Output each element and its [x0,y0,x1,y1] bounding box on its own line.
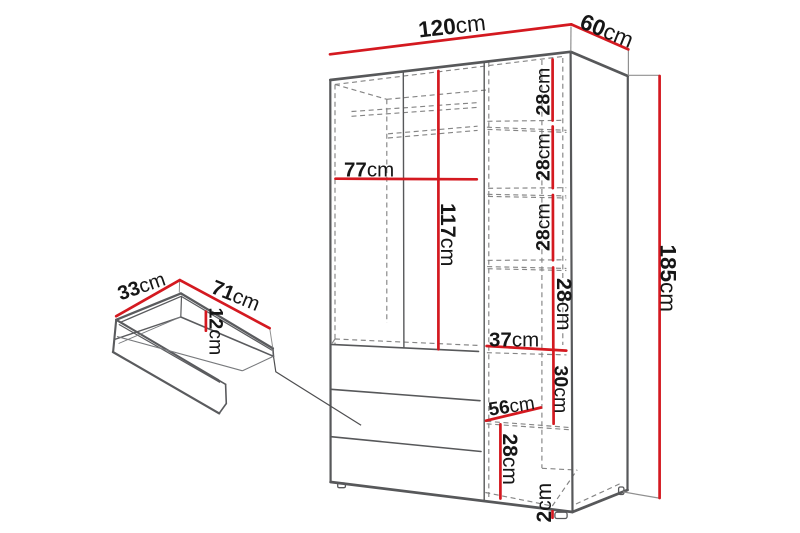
svg-text:28cm: 28cm [533,68,555,116]
svg-text:28cm: 28cm [533,133,555,181]
svg-text:30cm: 30cm [550,366,572,414]
svg-text:28cm: 28cm [533,203,555,251]
svg-text:37cm: 37cm [489,329,539,352]
svg-text:28cm: 28cm [552,278,576,331]
svg-text:77cm: 77cm [344,159,394,182]
svg-text:185cm: 185cm [656,245,681,313]
svg-text:28cm: 28cm [498,434,521,485]
svg-text:117cm: 117cm [436,203,460,266]
svg-text:12cm: 12cm [205,308,227,356]
svg-text:2cm: 2cm [533,483,556,523]
